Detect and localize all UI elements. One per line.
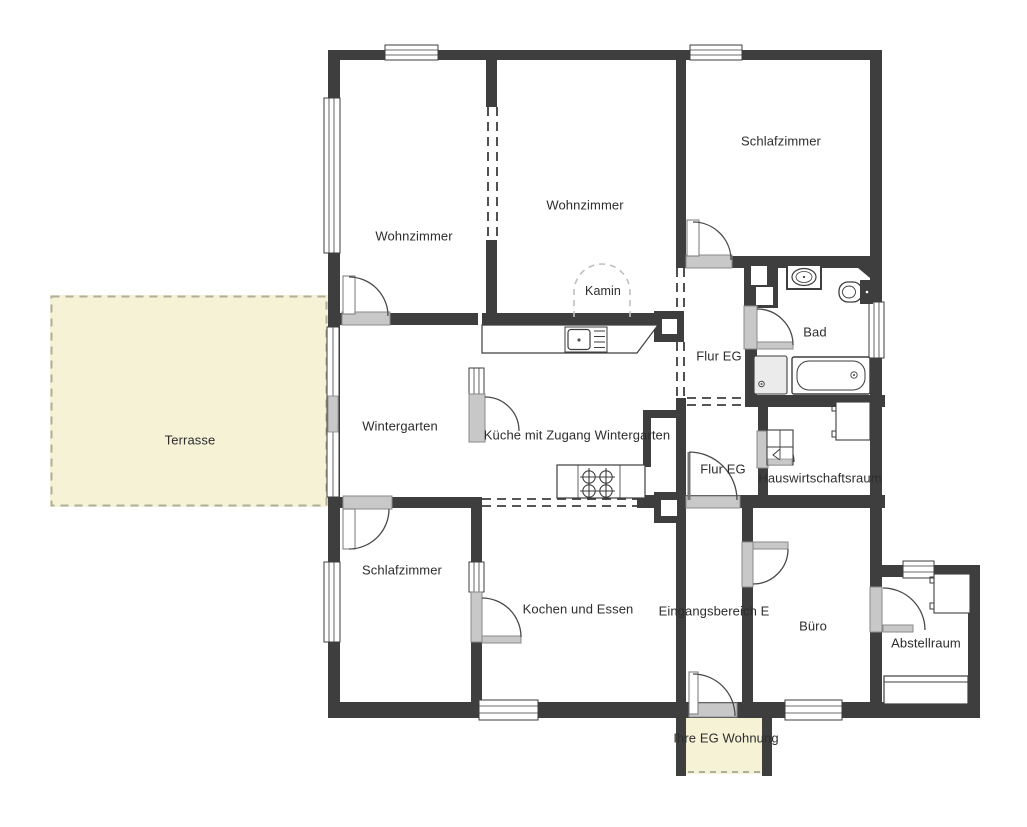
wall-entry-right — [762, 718, 772, 776]
dashed-openings — [482, 107, 744, 506]
kitchen-sink-icon — [565, 327, 607, 352]
walls — [328, 50, 980, 776]
wall-outer-bottom — [328, 702, 980, 718]
washing-machine-icon — [767, 430, 793, 465]
window-livingroom-left — [324, 98, 340, 253]
duct-hole — [751, 266, 767, 285]
door-leaf — [687, 220, 699, 256]
shower-icon — [754, 356, 787, 394]
door-swing — [485, 397, 519, 431]
room-label-kamin: Kamin — [585, 284, 621, 298]
wall-livingroom-kitchen — [482, 313, 658, 325]
door-threshold-wintergarten-bedroom2 — [343, 496, 392, 509]
toilet-icon — [839, 280, 873, 304]
room-label-bad: Bad — [803, 326, 826, 341]
door-leaf — [757, 342, 793, 349]
door-threshold-wintergarten-kitchen — [469, 394, 485, 442]
terrace-area — [50, 295, 328, 507]
room-label-flur-eg-oben: Flur EG — [696, 350, 741, 365]
door-swing — [753, 549, 788, 584]
door-leaf — [482, 636, 521, 643]
window-kitchen-interior — [469, 368, 484, 396]
window-top-right — [690, 45, 742, 60]
wall-hall-entrance-left — [676, 398, 686, 718]
room-label-eingangsbereich: Eingangsbereich E — [659, 605, 770, 620]
duct-hole — [661, 500, 677, 516]
floor-plan-drawing — [0, 0, 1027, 827]
room-label-abstellraum: Abstellraum — [891, 637, 961, 652]
storage-shelf-icon — [930, 574, 970, 613]
room-label-ihre-eg-wohnung: Ihre EG Wohnung — [673, 732, 778, 747]
duct-hole — [756, 287, 773, 305]
door-threshold-bedroom2-dining — [471, 592, 482, 642]
window-top-left — [385, 45, 438, 60]
wall-livingrooms-divider-bottom — [486, 240, 497, 315]
door-leaf — [343, 509, 355, 549]
room-label-kueche: Küche mit Zugang Wintergarten — [484, 429, 670, 444]
window-bedroom2-interior — [469, 562, 484, 592]
duct-hole — [662, 319, 677, 334]
door-threshold-bath — [744, 306, 757, 349]
window-storage-top — [903, 561, 934, 578]
utility-fixtures — [767, 402, 870, 465]
room-label-kochen-und-essen: Kochen und Essen — [523, 603, 634, 618]
door-threshold-bedroom — [686, 255, 732, 268]
door-swing — [482, 598, 521, 637]
wall-entry-left — [676, 718, 686, 776]
wall-bedroom-left — [676, 60, 686, 256]
room-label-terrasse: Terrasse — [165, 434, 216, 449]
room-label-wohnzimmer-links: Wohnzimmer — [375, 230, 452, 245]
terrace-fill — [50, 295, 328, 507]
room-label-buero: Büro — [799, 620, 827, 635]
window-wintergarten-glazing — [327, 327, 339, 497]
room-label-hauswirtschaftsraum: Hauswirtschaftsraum — [758, 472, 881, 487]
room-label-wohnzimmer-mitte: Wohnzimmer — [546, 199, 623, 214]
window-dining-bottom — [479, 700, 538, 720]
floor-plan-page: Terrasse Wohnzimmer Wohnzimmer Schlafzim… — [0, 0, 1027, 827]
door-threshold-office-storage — [870, 587, 882, 632]
window-office-bottom — [785, 700, 842, 720]
kitchen-fixtures — [482, 325, 658, 500]
door-threshold-entrance-office — [742, 542, 753, 587]
utility-shelf-icon — [832, 402, 870, 440]
bath-sink-icon — [787, 265, 821, 289]
door-threshold-utility — [757, 431, 768, 468]
door-leaf — [343, 276, 355, 314]
door-swing — [757, 309, 793, 345]
wall-livingrooms-divider-top — [486, 60, 497, 107]
room-label-wintergarten: Wintergarten — [362, 420, 438, 435]
window-bath-right — [869, 302, 884, 358]
bathtub-icon — [792, 357, 870, 394]
storage-bench-icon — [884, 676, 968, 704]
door-threshold-hall-entrance — [686, 496, 740, 508]
room-label-schlafzimmer-oben: Schlafzimmer — [741, 135, 821, 150]
door-leaf — [689, 672, 698, 714]
door-swing — [883, 588, 925, 630]
door-leaf — [883, 625, 913, 632]
stove-icon — [557, 465, 645, 500]
room-label-flur-eg-unten: Flur EG — [700, 463, 745, 478]
door-leaf — [753, 542, 788, 549]
room-label-schlafzimmer-unten: Schlafzimmer — [362, 564, 442, 579]
window-bedroom2-left — [324, 562, 340, 642]
